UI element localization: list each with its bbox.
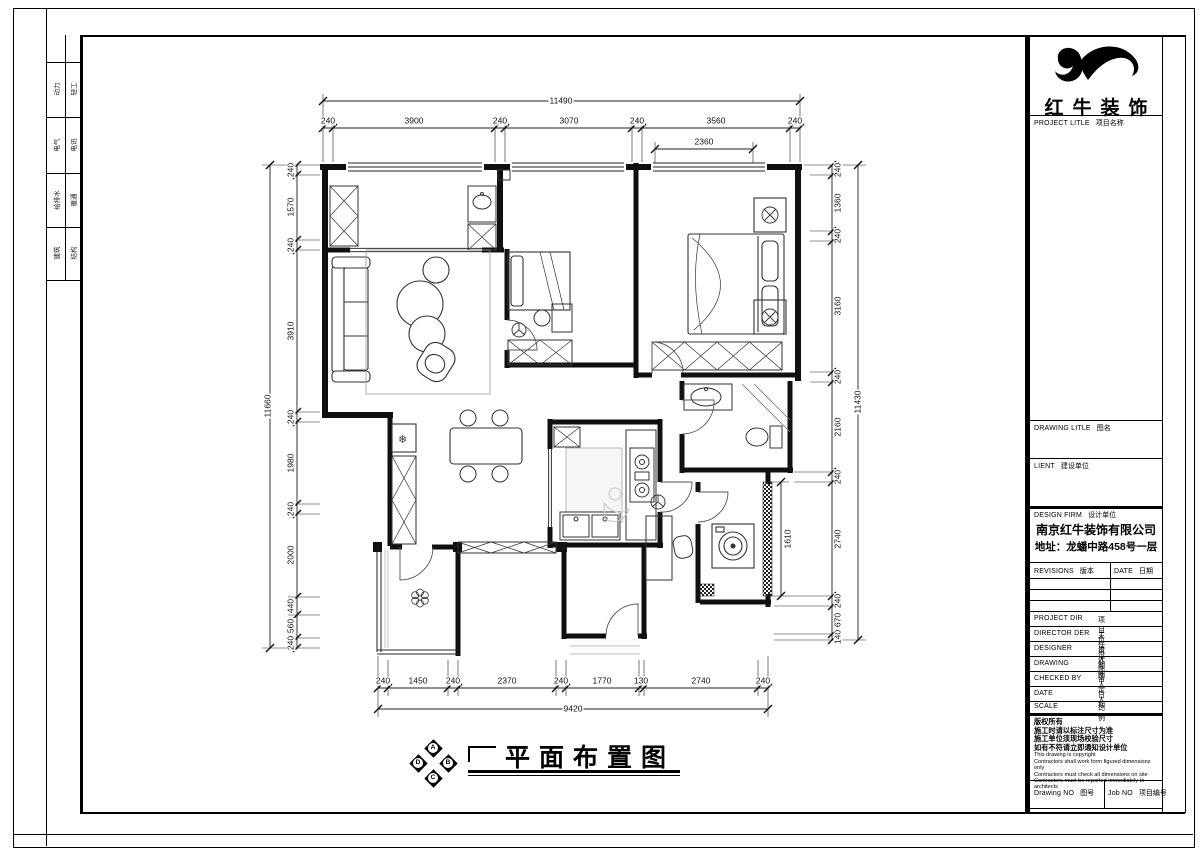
dim-label: 240 — [287, 501, 296, 517]
design-firm-row: DESIGN FIRM设计单位 — [1034, 510, 1116, 520]
dim-label: 240 — [287, 162, 296, 178]
dim-label: 240 — [320, 117, 336, 126]
dim-label: 670 — [834, 612, 843, 628]
tb-line — [1030, 611, 1162, 612]
copyright-notes: 版权所有 施工时请以标注尺寸为准 施工单位须现场校验尺寸 如有不符请立即通知设计… — [1034, 718, 1160, 791]
stove — [630, 448, 654, 502]
desk — [552, 304, 572, 332]
dim-label: 1610 — [784, 529, 793, 550]
project-title-row: PROJECT LITLE项目名称 — [1034, 118, 1124, 128]
dim-label: 130 — [633, 677, 649, 686]
drawing-no-cell: Drawing NO图号 — [1034, 788, 1094, 798]
floor-plan-drawing: ❄ — [0, 0, 1200, 852]
wardrobe — [652, 342, 782, 370]
client-row: LIENT建设单位 — [1034, 461, 1089, 471]
tb-line — [1030, 506, 1162, 509]
dim-label: 240 — [553, 677, 569, 686]
dim-label: 240 — [375, 677, 391, 686]
dim-label: 3160 — [834, 296, 843, 317]
balcony-sink-cabinet — [468, 186, 496, 222]
fridge-snowflake-icon: ❄ — [398, 434, 407, 446]
tb-line — [1030, 578, 1162, 579]
dim-label: 240 — [287, 237, 296, 253]
coffee-tables — [397, 257, 449, 352]
tb-line — [1030, 626, 1162, 627]
drawing-sheet: 动力 轻工 电气 电讯 给排水 暖通 建筑 结构 — [0, 0, 1200, 852]
tb-line — [1030, 562, 1162, 563]
dim-label: 11490 — [548, 97, 573, 106]
dim-label: 240 — [629, 117, 645, 126]
title-mark — [468, 746, 496, 762]
tb-line — [1030, 713, 1162, 716]
staff-row: DATE日 期 — [1034, 690, 1053, 697]
dim-label: 240 — [492, 117, 508, 126]
title-underline — [468, 770, 680, 773]
washing-machine — [712, 524, 754, 568]
dim-label: 1360 — [834, 193, 843, 214]
dim-label: 240 — [287, 635, 296, 651]
bed — [688, 234, 784, 334]
dining-chair — [460, 410, 508, 482]
revisions-head: REVISIONS版本 — [1034, 566, 1094, 576]
table-lamp-icon — [762, 207, 778, 325]
dim-label: 240 — [445, 677, 461, 686]
tb-line — [1030, 458, 1162, 459]
cabinets-hatched — [330, 170, 782, 553]
compass-letter: C — [427, 772, 439, 784]
dining-table — [450, 428, 522, 464]
dim-label: 240 — [834, 228, 843, 244]
tb-line — [1030, 115, 1162, 116]
dim-label: 1450 — [408, 677, 429, 686]
dim-label: 440 — [287, 598, 296, 614]
sofa — [332, 257, 370, 382]
compass-letter: D — [412, 757, 424, 769]
dim-label: 2740 — [691, 677, 712, 686]
dim-label: 2160 — [834, 417, 843, 438]
wall-block — [700, 584, 714, 596]
wardrobe — [508, 340, 572, 365]
dim-label: 2370 — [497, 677, 518, 686]
tb-line — [1030, 420, 1162, 421]
dim-label: 240 — [834, 369, 843, 385]
firm-name: 南京红牛装饰有限公司 — [1030, 521, 1162, 538]
stool — [534, 310, 550, 326]
dim-label: 11660 — [264, 393, 273, 418]
dim-label: 2360 — [694, 138, 715, 147]
date-head: DATE日期 — [1114, 566, 1153, 576]
dim-label: 11430 — [854, 389, 863, 414]
job-no-cell: Job NO项目编号 — [1108, 788, 1167, 798]
dim-label: 2000 — [287, 545, 296, 566]
tb-vline — [1110, 562, 1111, 611]
dim-label: 240 — [834, 469, 843, 485]
tb-line — [1030, 589, 1162, 590]
drawing-title-row: DRAWING LITLE图名 — [1034, 423, 1111, 433]
dim-label: 3070 — [559, 117, 580, 126]
redbull-logo-icon — [1048, 38, 1148, 96]
staff-row: DRAWING制图人 — [1034, 660, 1069, 667]
toilet — [746, 426, 782, 448]
dim-label: 1980 — [287, 453, 296, 474]
dim-label: 3910 — [287, 321, 296, 342]
staff-row: DIRECTOR DER主任设计师 — [1034, 630, 1090, 637]
tb-line — [1030, 808, 1162, 809]
dim-label: 9420 — [563, 705, 584, 714]
tb-line — [1030, 701, 1162, 702]
dim-label: 1770 — [592, 677, 613, 686]
staff-row: DESIGNER设计师 — [1034, 645, 1072, 652]
tb-line — [1030, 641, 1162, 642]
dim-label: 140 — [834, 629, 843, 645]
staff-row: CHECKED BY审定人 — [1034, 675, 1082, 682]
dim-label: 240 — [834, 593, 843, 609]
tb-line — [1030, 671, 1162, 672]
shower-corner — [742, 384, 790, 432]
staff-row: SCALE比 例 — [1034, 703, 1058, 710]
tb-line — [1030, 656, 1162, 657]
title-underline — [468, 775, 680, 776]
kitchen-sink — [560, 512, 620, 540]
dim-label: 3560 — [706, 117, 727, 126]
tb-line — [1030, 600, 1162, 601]
washbasin — [684, 384, 732, 410]
dim-label: 240 — [787, 117, 803, 126]
tb-line — [1030, 686, 1162, 687]
dim-label: 560 — [287, 618, 296, 634]
dim-label: 1570 — [287, 197, 296, 218]
dim-label: 3900 — [404, 117, 425, 126]
dim-label: 2740 — [834, 529, 843, 550]
dim-label: 240 — [834, 162, 843, 178]
nightstand — [754, 198, 786, 334]
plant-icon — [412, 589, 429, 607]
dim-label: 240 — [755, 677, 771, 686]
staff-row: PROJECT DIR项目负责人 — [1034, 615, 1083, 622]
compass-letter: A — [427, 742, 439, 754]
compass-letter: B — [442, 757, 454, 769]
dim-label: 240 — [287, 409, 296, 425]
chair — [672, 534, 694, 559]
insulated-wall — [763, 482, 772, 596]
bed — [508, 252, 570, 310]
firm-address: 地址：龙蟠中路458号一层 — [1030, 539, 1162, 554]
plan-title: 平面布置图 — [505, 738, 675, 774]
